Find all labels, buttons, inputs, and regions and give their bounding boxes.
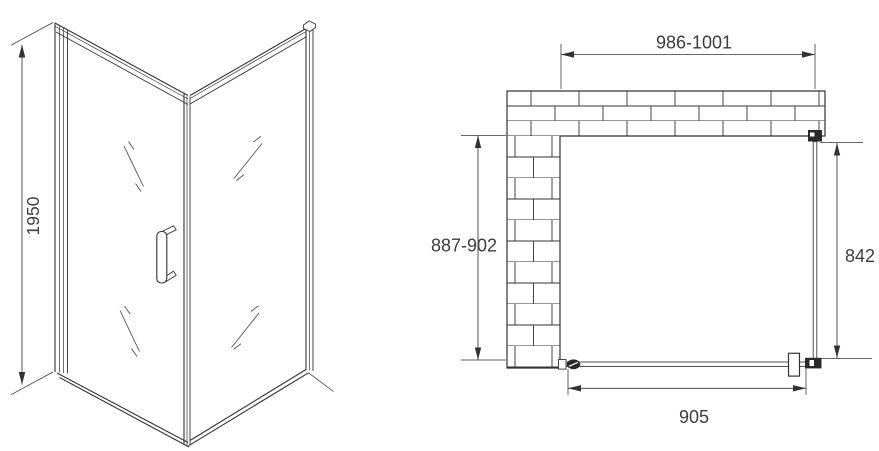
arrow-down-icon — [475, 348, 481, 361]
arrow-up-icon — [19, 45, 26, 58]
side-panel-dimension: 842 — [820, 143, 875, 359]
front-view: 1950 — [11, 21, 334, 447]
height-dimension: 1950 — [11, 23, 53, 395]
side-panel — [189, 21, 334, 446]
overall-width-dimension: 986-1001 — [561, 33, 815, 90]
door-handle-plan — [789, 353, 800, 376]
plan-view: 986-1001 887-902 842 905 — [431, 33, 875, 428]
door-line — [566, 362, 813, 366]
door-width-dimension: 905 — [568, 368, 806, 427]
extension-line — [11, 23, 53, 46]
arrow-right-icon — [802, 51, 815, 57]
overall-width-dimension-label: 986-1001 — [656, 33, 732, 53]
floor-extension-line — [309, 373, 334, 392]
arrow-down-icon — [19, 372, 26, 385]
glass-panel-line — [813, 142, 817, 360]
side-panel-dimension-label: 842 — [845, 246, 875, 266]
door-plan — [559, 353, 822, 376]
technical-drawing-canvas: 1950 — [0, 0, 879, 451]
depth-dimension: 887-902 — [431, 136, 506, 361]
shower-enclosure-drawing: 1950 — [0, 0, 879, 451]
depth-dimension-label: 887-902 — [431, 236, 497, 256]
arrow-left-icon — [561, 51, 574, 57]
arrow-down-icon — [834, 346, 840, 359]
arrow-up-icon — [834, 143, 840, 156]
arrow-up-icon — [475, 136, 481, 149]
extension-line — [11, 372, 53, 395]
side-panel-plan — [808, 130, 822, 360]
arrow-right-icon — [793, 385, 806, 391]
arrow-left-icon — [568, 385, 581, 391]
wall-top — [507, 91, 825, 136]
door-width-dimension-label: 905 — [679, 407, 709, 427]
wall-left — [507, 136, 560, 368]
walls — [507, 91, 825, 368]
height-dimension-label: 1950 — [23, 196, 43, 235]
hinge-wall-plate — [559, 360, 567, 370]
door-panel — [55, 23, 189, 447]
